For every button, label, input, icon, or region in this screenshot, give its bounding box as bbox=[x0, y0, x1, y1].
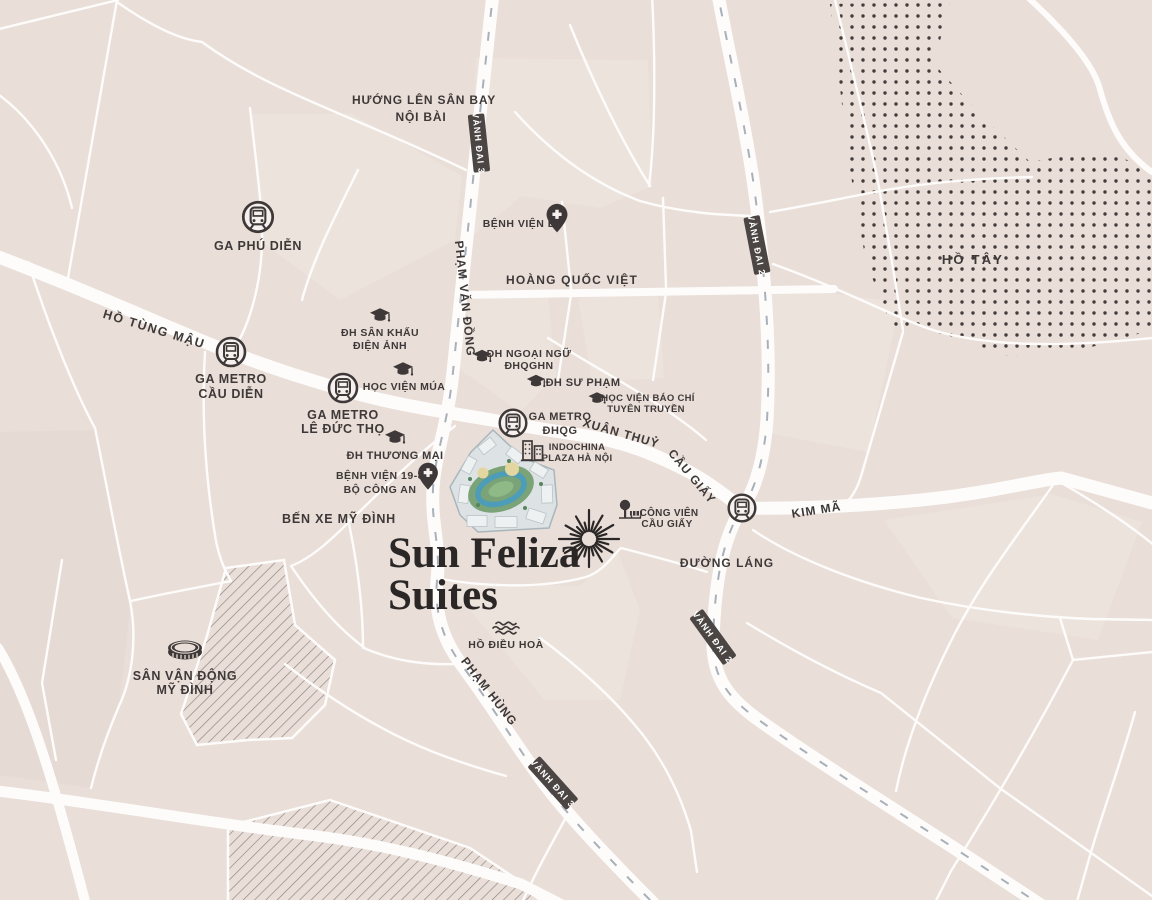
location-map: GA PHÚ DIỄN GA METRO CẦU DIỄN GA METRO L… bbox=[0, 0, 1152, 900]
poi-label-cong-vien-cau-giay: CÔNG VIÊN bbox=[640, 506, 699, 519]
poi-label-benh-vien-19-8: BỆNH VIỆN 19-8 bbox=[336, 469, 424, 482]
metro-station-icon bbox=[500, 410, 527, 437]
area-label-bus-station: BẾN XE MỸ ĐÌNH bbox=[282, 511, 396, 526]
poi-label-san-van-dong: SÂN VẬN ĐỘNG bbox=[133, 668, 237, 683]
project-logo-line2: Suites bbox=[388, 572, 498, 619]
poi-label-dh-san-khau: ĐIỆN ẢNH bbox=[353, 339, 407, 352]
poi-label-san-van-dong: MỸ ĐÌNH bbox=[157, 682, 214, 697]
poi-label-hoc-vien-bao-chi: TUYÊN TRUYỀN bbox=[607, 403, 685, 415]
road-label-hoang-quoc-viet: HOÀNG QUỐC VIỆT bbox=[506, 272, 638, 287]
poi-label-ga-phu-dien: GA PHÚ DIỄN bbox=[214, 238, 302, 253]
metro-station-icon bbox=[243, 202, 272, 231]
poi-label-ga-metro-dhqg: GA METRO bbox=[529, 411, 592, 423]
poi-label-ga-metro-cau-dien: CẦU DIỄN bbox=[198, 386, 263, 401]
metro-station-icon bbox=[729, 495, 756, 522]
area-label-airport-direction: HƯỚNG LÊN SÂN BAY bbox=[352, 92, 496, 107]
stadium-icon bbox=[168, 641, 202, 660]
area-label-airport-direction: NỘI BÀI bbox=[396, 109, 447, 124]
poi-label-hoc-vien-bao-chi: HỌC VIỆN BÁO CHÍ bbox=[601, 392, 695, 404]
poi-label-cong-vien-cau-giay: CẦU GIẤY bbox=[641, 517, 692, 530]
poi-label-dh-ngoai-ngu: ĐHQGHN bbox=[504, 360, 553, 372]
poi-label-indochina-plaza: PLAZA HÀ NỘI bbox=[542, 452, 613, 464]
metro-station-icon bbox=[329, 374, 357, 402]
poi-label-benh-vien-e: BỆNH VIỆN E bbox=[483, 217, 556, 230]
poi-label-dh-thuong-mai: ĐH THƯƠNG MẠI bbox=[346, 450, 443, 462]
poi-label-dh-su-pham: ĐH SƯ PHẠM bbox=[546, 377, 621, 389]
poi-label-dh-ngoai-ngu: ĐH NGOẠI NGỮ bbox=[487, 347, 572, 360]
road-label-duong-lang: ĐƯỜNG LÁNG bbox=[680, 555, 774, 570]
poi-label-indochina-plaza: INDOCHINA bbox=[549, 442, 606, 453]
poi-label-dh-san-khau: ĐH SÂN KHẤU bbox=[341, 326, 419, 339]
project-logo-line1: Sun Feliza bbox=[388, 530, 580, 577]
poi-label-ga-metro-le-duc-tho: GA METRO bbox=[307, 408, 379, 422]
poi-label-benh-vien-19-8: BỘ CÔNG AN bbox=[344, 483, 417, 496]
poi-label-ga-metro-dhqg: ĐHQG bbox=[543, 425, 578, 437]
poi-label-hoc-vien-mua: HỌC VIỆN MÚA bbox=[363, 380, 445, 393]
area-label-west-lake: HỒ TÂY bbox=[942, 252, 1004, 267]
metro-station-icon bbox=[217, 338, 245, 366]
poi-label-ga-metro-cau-dien: GA METRO bbox=[195, 372, 267, 386]
poi-label-ga-metro-le-duc-tho: LÊ ĐỨC THỌ bbox=[301, 421, 385, 436]
poi-label-ho-dieu-hoa: HỒ ĐIỀU HOÀ bbox=[468, 638, 544, 651]
